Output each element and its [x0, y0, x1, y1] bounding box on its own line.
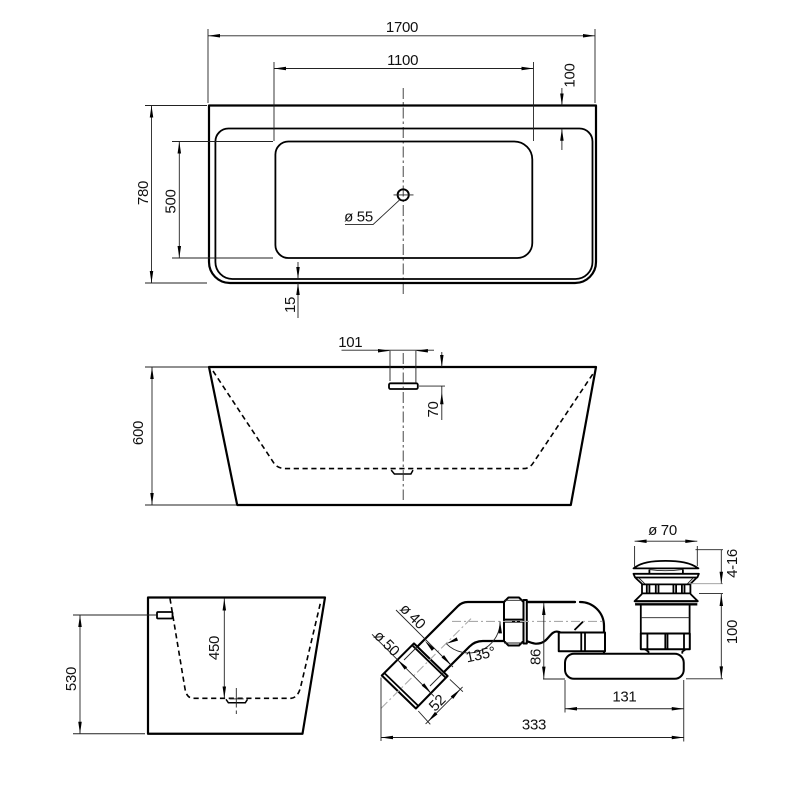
svg-text:4-16: 4-16 — [724, 549, 741, 578]
svg-text:86: 86 — [528, 649, 545, 665]
svg-text:70: 70 — [425, 401, 442, 417]
svg-text:1700: 1700 — [386, 19, 418, 36]
svg-text:131: 131 — [612, 688, 636, 705]
svg-text:600: 600 — [130, 421, 147, 445]
svg-text:100: 100 — [562, 63, 579, 87]
svg-text:333: 333 — [522, 717, 546, 734]
svg-text:15: 15 — [282, 297, 299, 313]
svg-text:ø 55: ø 55 — [344, 209, 373, 226]
svg-text:ø 70: ø 70 — [648, 522, 677, 539]
svg-text:450: 450 — [206, 636, 223, 660]
svg-text:780: 780 — [135, 181, 152, 205]
svg-text:1100: 1100 — [387, 52, 418, 69]
svg-text:530: 530 — [63, 667, 80, 691]
svg-text:101: 101 — [338, 334, 362, 351]
svg-text:100: 100 — [724, 620, 741, 644]
svg-text:500: 500 — [163, 189, 180, 213]
